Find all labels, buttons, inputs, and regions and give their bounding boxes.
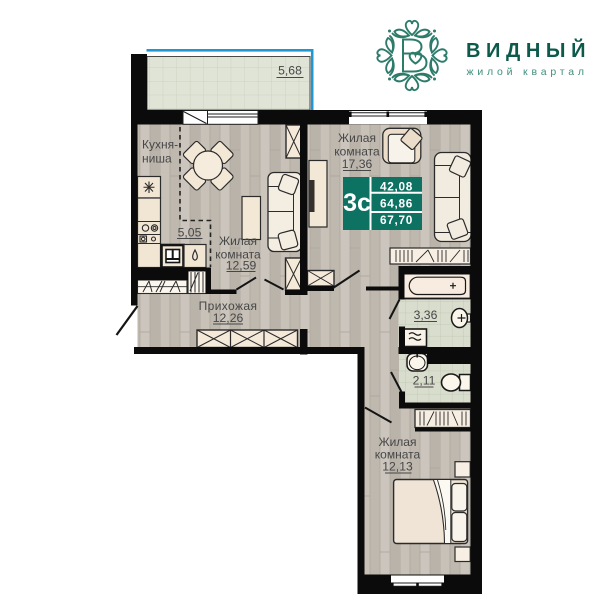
svg-text:Кухня-: Кухня- [142, 138, 178, 152]
svg-text:12,26: 12,26 [213, 311, 244, 325]
svg-text:Жилая: Жилая [219, 234, 257, 248]
svg-text:Жилая: Жилая [338, 131, 376, 145]
svg-text:17,36: 17,36 [342, 157, 373, 171]
svg-text:5,05: 5,05 [178, 226, 202, 240]
svg-text:64,86: 64,86 [380, 196, 413, 210]
svg-text:3,36: 3,36 [414, 308, 438, 322]
svg-text:12,59: 12,59 [226, 259, 257, 273]
svg-text:ниша: ниша [142, 152, 172, 166]
svg-text:67,70: 67,70 [380, 213, 413, 227]
svg-text:42,08: 42,08 [380, 180, 413, 194]
svg-text:5,68: 5,68 [278, 64, 302, 78]
svg-text:12,13: 12,13 [382, 460, 413, 474]
svg-text:ВИДНЫЙ: ВИДНЫЙ [466, 38, 591, 62]
svg-text:жилой квартал: жилой квартал [467, 66, 588, 78]
svg-text:3с: 3с [343, 189, 371, 217]
svg-text:2,11: 2,11 [413, 374, 436, 388]
